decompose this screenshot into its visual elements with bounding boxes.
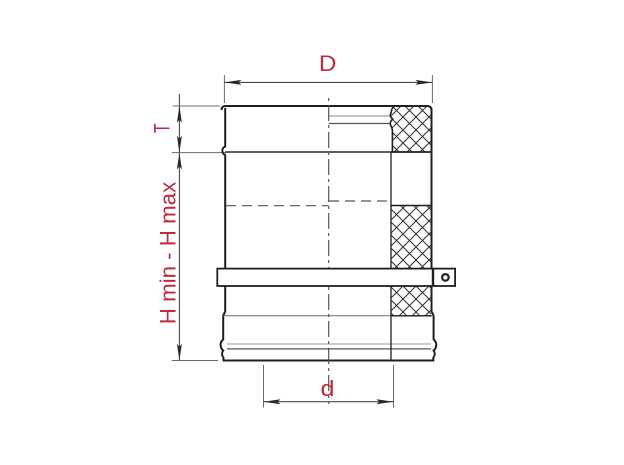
svg-text:T: T — [150, 123, 175, 133]
svg-text:d: d — [321, 376, 335, 401]
svg-text:D: D — [319, 51, 337, 76]
svg-text:H min - H max: H min - H max — [156, 182, 181, 324]
